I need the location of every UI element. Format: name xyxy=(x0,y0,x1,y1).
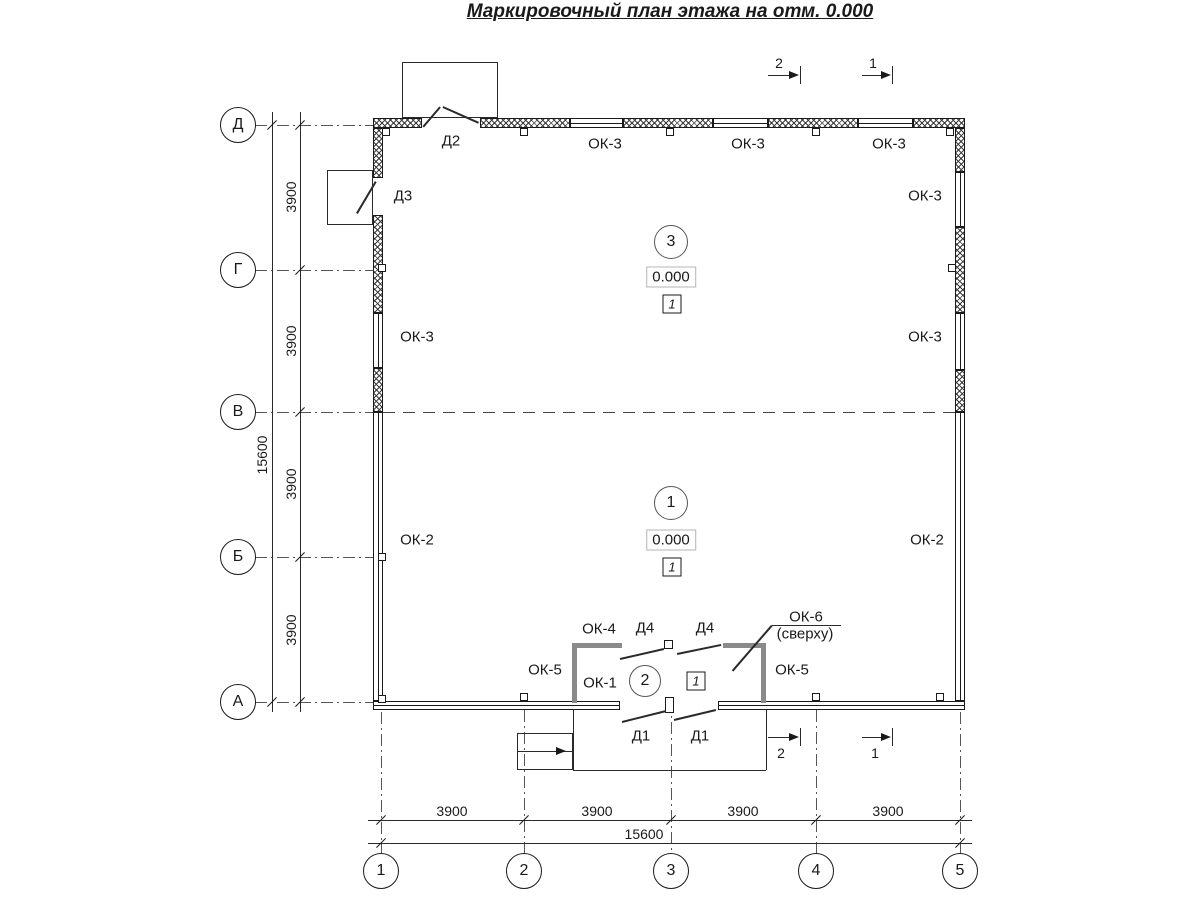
dim-value: 3900 xyxy=(581,803,612,819)
door-swing-d4 xyxy=(677,644,721,655)
window-label-ok3: ОК-3 xyxy=(908,187,942,204)
axis-letter: В xyxy=(233,403,244,421)
window-ok3 xyxy=(955,172,965,227)
elevation-mark: 0.000 xyxy=(646,530,696,551)
dim-value: 3900 xyxy=(436,803,467,819)
vestibule-mullion xyxy=(664,640,673,649)
wall-pier xyxy=(373,118,422,128)
room-number: 3 xyxy=(667,233,676,251)
section-mark-2: 2 xyxy=(775,55,783,71)
window-label-ok1: ОК-1 xyxy=(583,674,617,691)
axis-line-4 xyxy=(816,710,817,854)
section-tick xyxy=(800,728,801,746)
axis-number: 2 xyxy=(520,862,529,880)
door-label-d4: Д4 xyxy=(636,619,655,636)
dim-value: 3900 xyxy=(283,181,299,212)
window-label-ok5: ОК-5 xyxy=(775,661,809,678)
axis-circle-g: Г xyxy=(220,252,256,288)
vestibule-partition-left xyxy=(572,643,577,703)
axis-circle-1: 1 xyxy=(363,853,399,889)
axis-line-v xyxy=(255,412,383,413)
axis-letter: А xyxy=(233,693,244,711)
window-label-ok3: ОК-3 xyxy=(400,328,434,345)
stair-direction-arrow xyxy=(520,751,558,752)
dim-total: 15600 xyxy=(254,436,270,475)
axis-marker xyxy=(378,264,386,272)
floor-plan-drawing: Маркировочный план этажа на отм. 0.000 xyxy=(0,0,1200,900)
axis-line-2 xyxy=(524,710,525,854)
axis-marker xyxy=(378,695,386,703)
wall-pier xyxy=(623,118,713,128)
axis-marker xyxy=(936,693,944,701)
section-mark-1: 1 xyxy=(871,745,879,761)
vestibule-partition-top-left xyxy=(572,643,622,648)
wall-pier xyxy=(955,128,965,172)
dim-value: 3900 xyxy=(727,803,758,819)
dim-value: 3900 xyxy=(872,803,903,819)
window-label-ok3: ОК-3 xyxy=(731,135,765,152)
axis-circle-5: 5 xyxy=(942,853,978,889)
axis-circle-a: А xyxy=(220,684,256,720)
window-ok2-band xyxy=(955,412,965,701)
floor-type-mark: 1 xyxy=(663,558,682,577)
wall-pier xyxy=(480,118,570,128)
wall-pier xyxy=(955,227,965,313)
section-arrowhead-icon xyxy=(881,71,891,79)
window-ok3 xyxy=(713,118,768,128)
axis-marker xyxy=(812,693,820,701)
dim-value: 3900 xyxy=(283,614,299,645)
window-label-ok2: ОК-2 xyxy=(910,531,944,548)
window-ok3 xyxy=(373,313,383,368)
axis-letter: Г xyxy=(234,261,243,279)
door-label-d3: Д3 xyxy=(394,187,413,204)
axis-letter: Б xyxy=(233,548,244,566)
window-label-ok4: ОК-4 xyxy=(582,620,616,637)
axis-line-v-dashed xyxy=(383,412,955,413)
window-label-ok2: ОК-2 xyxy=(400,531,434,548)
axis-circle-b: Б xyxy=(220,539,256,575)
floor-type-mark: 1 xyxy=(687,672,706,691)
section-arrowhead-icon xyxy=(789,733,799,741)
axis-marker xyxy=(666,128,674,136)
section-tick xyxy=(892,728,893,746)
section-mark-1: 1 xyxy=(869,55,877,71)
axis-number: 5 xyxy=(956,862,965,880)
room-number: 2 xyxy=(641,672,650,690)
door-mullion xyxy=(665,697,674,713)
axis-circle-2: 2 xyxy=(506,853,542,889)
axis-marker xyxy=(378,553,386,561)
wall-pier xyxy=(955,370,965,412)
wall-pier xyxy=(913,118,965,128)
door-label-d2: Д2 xyxy=(442,132,461,149)
axis-number: 3 xyxy=(667,862,676,880)
window-label-ok3: ОК-3 xyxy=(872,135,906,152)
window-label-ok5: ОК-5 xyxy=(528,661,562,678)
dim-value: 3900 xyxy=(283,325,299,356)
room-number-circle: 3 xyxy=(654,225,688,259)
drawing-title: Маркировочный план этажа на отм. 0.000 xyxy=(467,1,874,23)
axis-marker xyxy=(520,128,528,136)
room-number: 1 xyxy=(667,494,676,512)
dimension-line-overall xyxy=(272,112,273,712)
axis-marker xyxy=(948,264,956,272)
axis-circle-v: В xyxy=(220,394,256,430)
bottom-wall-band xyxy=(373,701,620,710)
door-label-d1: Д1 xyxy=(691,727,710,744)
ok6-leader-line xyxy=(732,625,772,671)
window-label-ok6: ОК-6 xyxy=(789,608,823,625)
dimension-line-overall xyxy=(368,843,972,844)
axis-circle-3: 3 xyxy=(653,853,689,889)
dim-value: 3900 xyxy=(283,468,299,499)
dim-total: 15600 xyxy=(625,826,664,842)
window-label-ok3: ОК-3 xyxy=(908,328,942,345)
floor-type-mark: 1 xyxy=(663,295,682,314)
window-ok3 xyxy=(570,118,623,128)
axis-line-1 xyxy=(381,712,382,854)
axis-circle-4: 4 xyxy=(798,853,834,889)
vestibule-partition-right xyxy=(761,643,766,703)
door-swing-d1 xyxy=(674,709,716,720)
elevation-mark: 0.000 xyxy=(646,267,696,288)
axis-circle-d: Д xyxy=(220,107,256,143)
section-arrowhead-icon xyxy=(789,71,799,79)
wall-pier xyxy=(768,118,858,128)
room-number-circle: 2 xyxy=(629,665,661,697)
wall-pier xyxy=(373,368,383,412)
section-tick xyxy=(892,66,893,84)
entrance-porch-bottom xyxy=(573,770,766,771)
stair-arrowhead-icon xyxy=(556,747,566,755)
door-swing-d1 xyxy=(622,710,666,722)
window-ok3 xyxy=(955,313,965,370)
axis-number: 1 xyxy=(377,862,386,880)
axis-line-3 xyxy=(671,700,672,854)
door-label-d1: Д1 xyxy=(632,727,651,744)
door-label-d4: Д4 xyxy=(696,619,715,636)
window-label-ok3: ОК-3 xyxy=(588,135,622,152)
axis-marker xyxy=(520,693,528,701)
window-ok3 xyxy=(858,118,913,128)
axis-line-5 xyxy=(960,712,961,854)
section-arrowhead-icon xyxy=(881,733,891,741)
bottom-wall-band xyxy=(718,701,965,710)
axis-number: 4 xyxy=(812,862,821,880)
window-label-ok6-note: (сверху) xyxy=(777,625,834,642)
axis-marker xyxy=(946,128,954,136)
axis-letter: Д xyxy=(233,116,244,134)
room-number-circle: 1 xyxy=(654,486,688,520)
door-swing-d4 xyxy=(620,648,664,659)
section-tick xyxy=(800,66,801,84)
section-mark-2: 2 xyxy=(777,745,785,761)
axis-marker xyxy=(812,128,820,136)
axis-marker xyxy=(382,128,390,136)
entrance-porch-right xyxy=(766,710,767,770)
entrance-porch-left xyxy=(573,710,574,770)
vestibule-partition-top-right xyxy=(723,643,766,648)
